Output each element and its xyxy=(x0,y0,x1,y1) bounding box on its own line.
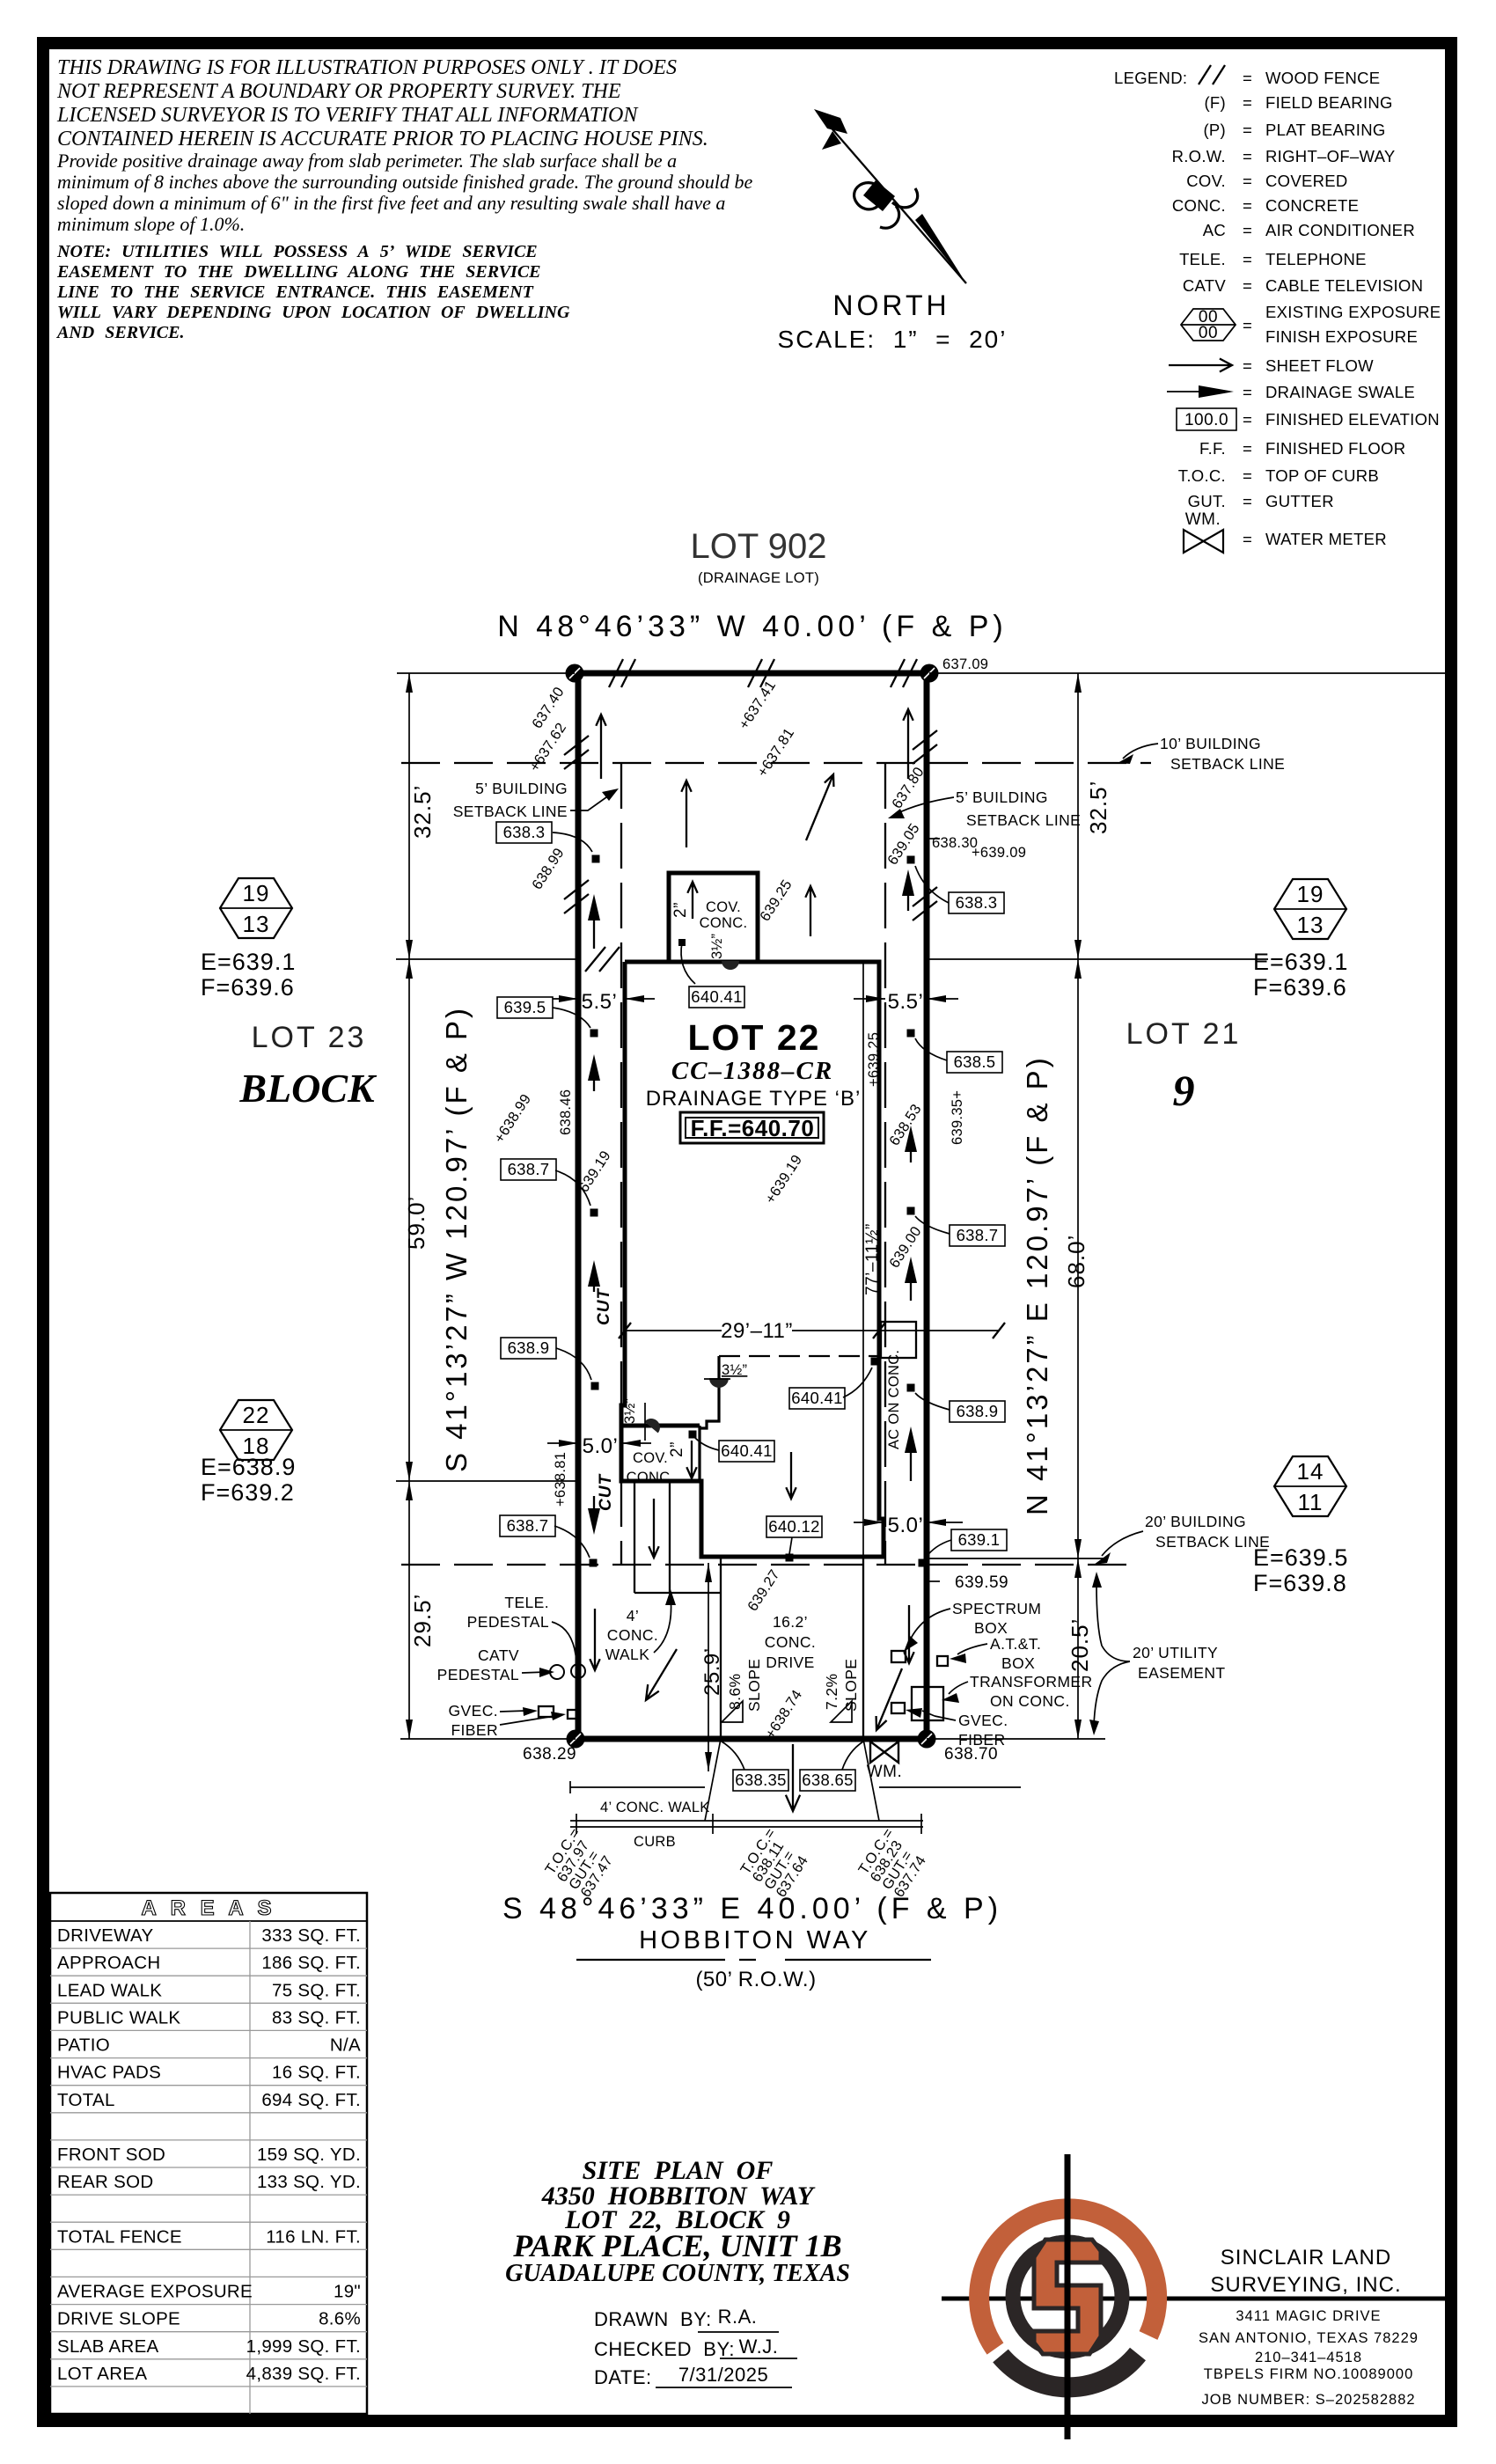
svg-text:TELEPHONE: TELEPHONE xyxy=(1265,250,1367,268)
svg-text:=: = xyxy=(1243,439,1252,458)
svg-text:LEGEND:: LEGEND: xyxy=(1114,69,1187,87)
svg-text:=: = xyxy=(1243,93,1252,112)
svg-text:COV.: COV. xyxy=(706,899,741,915)
svg-text:minimum slope of 1.0%.: minimum slope of 1.0%. xyxy=(57,213,245,235)
svg-text:8.6%: 8.6% xyxy=(726,1674,744,1711)
svg-text:=: = xyxy=(1243,276,1252,295)
svg-text:638.29: 638.29 xyxy=(523,1745,576,1764)
svg-text:SETBACK LINE: SETBACK LINE xyxy=(453,803,568,820)
svg-text:19: 19 xyxy=(1297,881,1324,907)
svg-text:EASEMENT TO THE DWELLING A: EASEMENT TO THE DWELLING ALONG THE SERVI… xyxy=(56,262,541,282)
svg-text:25.9’: 25.9’ xyxy=(700,1647,724,1696)
svg-text:9: 9 xyxy=(1173,1066,1195,1115)
svg-text:S 48°46’33” E 40.00’ (F & P): S 48°46’33” E 40.00’ (F & P) xyxy=(502,1892,1002,1925)
svg-text:EXISTING EXPOSURE: EXISTING EXPOSURE xyxy=(1265,303,1441,321)
svg-text:A.T.&T.: A.T.&T. xyxy=(990,1635,1041,1653)
svg-text:SINCLAIR LAND: SINCLAIR LAND xyxy=(1221,2246,1391,2270)
svg-text:E=639.1: E=639.1 xyxy=(1253,949,1348,975)
svg-text:S 41°13’27” W 120.97’ (F & P): S 41°13’27” W 120.97’ (F & P) xyxy=(440,1006,473,1472)
svg-text:FINISH EXPOSURE: FINISH EXPOSURE xyxy=(1265,327,1418,346)
svg-text:=: = xyxy=(1243,121,1252,139)
svg-text:3½”: 3½” xyxy=(709,934,725,959)
svg-text:DRAINAGE SWALE: DRAINAGE SWALE xyxy=(1265,383,1415,401)
svg-text:W.J.: W.J. xyxy=(739,2336,779,2358)
svg-text:HOBBITON WAY: HOBBITON WAY xyxy=(639,1926,871,1954)
svg-text:CONC.: CONC. xyxy=(607,1626,658,1644)
svg-text:CURB: CURB xyxy=(634,1834,676,1850)
svg-text:=: = xyxy=(1243,221,1252,239)
svg-text:68.0’: 68.0’ xyxy=(1063,1235,1089,1288)
svg-text:16.2’: 16.2’ xyxy=(773,1613,808,1631)
svg-text:5.0’: 5.0’ xyxy=(888,1514,924,1537)
svg-text:100.0: 100.0 xyxy=(1184,411,1228,429)
svg-text:638.5: 638.5 xyxy=(954,1052,996,1071)
svg-text:R.A.: R.A. xyxy=(718,2306,758,2328)
svg-text:638.7: 638.7 xyxy=(508,1160,550,1178)
svg-text:WILL VARY DEPENDING UPON L: WILL VARY DEPENDING UPON LOCATION OF DWE… xyxy=(57,303,570,322)
svg-text:ON CONC.: ON CONC. xyxy=(990,1692,1070,1710)
svg-text:AVERAGE EXPOSURE: AVERAGE EXPOSURE xyxy=(57,2282,253,2302)
svg-text:5.5’: 5.5’ xyxy=(888,990,924,1014)
svg-text:minimum of 8 inches above the: minimum of 8 inches above the surroundin… xyxy=(57,171,753,193)
svg-text:F=639.6: F=639.6 xyxy=(1253,974,1347,1001)
svg-text:AIR CONDITIONER: AIR CONDITIONER xyxy=(1265,221,1415,239)
svg-text:PLAT BEARING: PLAT BEARING xyxy=(1265,121,1386,139)
svg-text:32.5’: 32.5’ xyxy=(1085,781,1111,834)
svg-text:8.6%: 8.6% xyxy=(319,2309,361,2329)
svg-text:639.35+: 639.35+ xyxy=(950,1090,965,1145)
svg-text:159 SQ. YD.: 159 SQ. YD. xyxy=(257,2145,361,2165)
svg-text:3411 MAGIC DRIVE: 3411 MAGIC DRIVE xyxy=(1236,2308,1381,2324)
svg-text:FIELD BEARING: FIELD BEARING xyxy=(1265,93,1393,112)
svg-text:NOTE: UTILITIES WILL POSSES: NOTE: UTILITIES WILL POSSESS A 5’ WIDE S… xyxy=(56,242,538,261)
svg-text:E=638.9: E=638.9 xyxy=(201,1454,296,1480)
svg-text:AC ON CONC.: AC ON CONC. xyxy=(886,1350,902,1449)
svg-text:GUADALUPE COUNTY, TEXAS: GUADALUPE COUNTY, TEXAS xyxy=(505,2260,850,2287)
svg-text:SPECTRUM: SPECTRUM xyxy=(952,1600,1041,1617)
svg-text:=: = xyxy=(1243,492,1252,510)
svg-text:WALK: WALK xyxy=(605,1646,650,1663)
svg-text:SLAB AREA: SLAB AREA xyxy=(57,2336,159,2357)
svg-text:LOT AREA: LOT AREA xyxy=(57,2364,147,2384)
svg-text:GUTTER: GUTTER xyxy=(1265,492,1334,510)
svg-text:TRANSFORMER: TRANSFORMER xyxy=(970,1673,1093,1690)
svg-text:694 SQ. FT.: 694 SQ. FT. xyxy=(261,2090,361,2110)
svg-text:DRIVE SLOPE: DRIVE SLOPE xyxy=(57,2309,180,2329)
svg-text:T.O.C.: T.O.C. xyxy=(1178,466,1226,485)
svg-text:LOT 23: LOT 23 xyxy=(252,1021,367,1054)
svg-text:TOTAL: TOTAL xyxy=(57,2090,115,2110)
svg-text:=: = xyxy=(1243,196,1252,215)
svg-text:GVEC.: GVEC. xyxy=(958,1712,1008,1729)
svg-text:=: = xyxy=(1243,172,1252,190)
svg-text:11: 11 xyxy=(1298,1489,1324,1515)
svg-text:210–341–4518: 210–341–4518 xyxy=(1255,2350,1362,2365)
svg-text:LOT 21: LOT 21 xyxy=(1126,1017,1242,1051)
svg-text:TELE.: TELE. xyxy=(1179,250,1226,268)
svg-text:(50’ R.O.W.): (50’ R.O.W.) xyxy=(695,1968,816,1991)
svg-text:=: = xyxy=(1243,530,1252,548)
svg-text:29’–11”: 29’–11” xyxy=(721,1319,793,1343)
svg-text:NOT REPRESENT A BOUNDARY OR PR: NOT REPRESENT A BOUNDARY OR PROPERTY SUR… xyxy=(56,80,621,103)
svg-text:GVEC.: GVEC. xyxy=(449,1702,498,1720)
svg-text:(DRAINAGE LOT): (DRAINAGE LOT) xyxy=(698,570,819,586)
svg-text:PARK PLACE, UNIT 1B: PARK PLACE, UNIT 1B xyxy=(512,2228,841,2263)
svg-text:133 SQ. YD.: 133 SQ. YD. xyxy=(257,2172,361,2192)
svg-text:=: = xyxy=(1243,410,1252,429)
svg-text:186 SQ. FT.: 186 SQ. FT. xyxy=(261,1953,361,1973)
svg-text:F.F.=640.70: F.F.=640.70 xyxy=(691,1115,815,1141)
svg-text:SETBACK LINE: SETBACK LINE xyxy=(1170,755,1285,773)
svg-text:77’–11½”: 77’–11½” xyxy=(863,1223,882,1295)
svg-text:7/31/2025: 7/31/2025 xyxy=(678,2364,768,2386)
svg-text:DRAWN BY:: DRAWN BY: xyxy=(594,2308,712,2330)
svg-text:E=639.5: E=639.5 xyxy=(1253,1544,1348,1571)
svg-text:333 SQ. FT.: 333 SQ. FT. xyxy=(261,1925,361,1946)
svg-text:GUT.: GUT. xyxy=(1188,492,1226,510)
svg-text:BOX: BOX xyxy=(1001,1654,1035,1672)
svg-text:CUT: CUT xyxy=(595,1288,613,1325)
svg-text:7.2%: 7.2% xyxy=(823,1674,840,1711)
svg-text:10’ BUILDING: 10’ BUILDING xyxy=(1160,735,1261,752)
svg-text:640.41: 640.41 xyxy=(691,987,742,1006)
svg-text:BLOCK: BLOCK xyxy=(238,1066,378,1111)
svg-text:5.5’: 5.5’ xyxy=(582,990,618,1014)
svg-text:APPROACH: APPROACH xyxy=(57,1953,160,1973)
svg-text:DRIVEWAY: DRIVEWAY xyxy=(57,1925,153,1946)
svg-text:THIS DRAWING IS FOR ILLUSTRATI: THIS DRAWING IS FOR ILLUSTRATION PURPOSE… xyxy=(57,56,677,79)
svg-text:TBPELS FIRM NO.10089000: TBPELS FIRM NO.10089000 xyxy=(1204,2366,1414,2382)
svg-text:(F): (F) xyxy=(1204,93,1226,112)
svg-text:5’ BUILDING: 5’ BUILDING xyxy=(475,780,568,797)
svg-text:CATV: CATV xyxy=(1183,276,1227,295)
svg-text:WM.: WM. xyxy=(867,1763,903,1781)
svg-text:=: = xyxy=(1243,69,1252,87)
svg-text:CONTAINED HEREIN IS ACCURATE P: CONTAINED HEREIN IS ACCURATE PRIOR TO PL… xyxy=(57,128,708,150)
svg-text:TOP OF CURB: TOP OF CURB xyxy=(1265,466,1379,485)
svg-text:PEDESTAL: PEDESTAL xyxy=(467,1613,549,1631)
svg-text:E=639.1: E=639.1 xyxy=(201,949,296,975)
svg-text:116 LN. FT.: 116 LN. FT. xyxy=(266,2226,361,2247)
svg-text:DATE:: DATE: xyxy=(594,2366,652,2388)
svg-text:20’ BUILDING: 20’ BUILDING xyxy=(1145,1513,1246,1530)
svg-text:SCALE: 1” = 20’: SCALE: 1” = 20’ xyxy=(778,326,1008,353)
svg-text:59.0’: 59.0’ xyxy=(403,1196,429,1250)
svg-text:75 SQ. FT.: 75 SQ. FT. xyxy=(272,1980,361,2000)
svg-text:+639.25: +639.25 xyxy=(866,1032,882,1087)
svg-text:+638.81: +638.81 xyxy=(553,1452,568,1507)
svg-text:HVAC PADS: HVAC PADS xyxy=(57,2063,161,2083)
svg-text:LOT 902: LOT 902 xyxy=(691,527,827,566)
svg-text:sloped down a minimum of 6" in: sloped down a minimum of 6" in the first… xyxy=(57,192,725,214)
svg-text:Provide positive drainage away: Provide positive drainage away from slab… xyxy=(56,150,677,172)
svg-text:14: 14 xyxy=(1297,1458,1324,1485)
svg-text:639.5: 639.5 xyxy=(504,998,546,1016)
svg-text:AC: AC xyxy=(1203,221,1226,239)
svg-text:5’ BUILDING: 5’ BUILDING xyxy=(956,788,1048,806)
svg-text:637.09: 637.09 xyxy=(942,656,988,672)
svg-text:SURVEYING, INC.: SURVEYING, INC. xyxy=(1210,2273,1401,2297)
svg-text:AND SERVICE.: AND SERVICE. xyxy=(55,323,184,342)
svg-text:=: = xyxy=(1243,250,1252,268)
svg-text:CHECKED BY:: CHECKED BY: xyxy=(594,2338,735,2360)
svg-text:=: = xyxy=(1243,147,1252,165)
svg-text:16 SQ. FT.: 16 SQ. FT. xyxy=(272,2063,361,2083)
svg-text:640.41: 640.41 xyxy=(791,1389,842,1407)
svg-text:BOX: BOX xyxy=(974,1619,1008,1637)
svg-text:2”: 2” xyxy=(671,902,690,918)
svg-text:13: 13 xyxy=(1297,912,1324,938)
svg-text:4’: 4’ xyxy=(627,1607,639,1624)
svg-text:LINE TO THE SERVICE ENTRAN: LINE TO THE SERVICE ENTRANCE. THIS EASEM… xyxy=(56,282,534,302)
svg-text:640.12: 640.12 xyxy=(768,1517,819,1536)
svg-text:WOOD FENCE: WOOD FENCE xyxy=(1265,69,1380,87)
svg-text:32.5’: 32.5’ xyxy=(409,785,436,839)
svg-text:20.5’: 20.5’ xyxy=(1067,1618,1093,1672)
svg-text:SLOPE: SLOPE xyxy=(842,1659,860,1712)
svg-text:29.5’: 29.5’ xyxy=(409,1594,436,1647)
svg-text:=: = xyxy=(1243,383,1252,401)
svg-text:COVERED: COVERED xyxy=(1265,172,1348,190)
svg-text:COV.: COV. xyxy=(1186,172,1226,190)
svg-text:83 SQ. FT.: 83 SQ. FT. xyxy=(272,2007,361,2028)
svg-text:=: = xyxy=(1243,316,1252,334)
svg-text:R.O.W.: R.O.W. xyxy=(1172,147,1226,165)
svg-text:LICENSED SURVEYOR IS TO VERIFY: LICENSED SURVEYOR IS TO VERIFY THAT ALL … xyxy=(56,104,639,127)
svg-text:3½”: 3½” xyxy=(722,1362,747,1378)
svg-text:638.65: 638.65 xyxy=(802,1771,853,1789)
svg-text:DRIVE: DRIVE xyxy=(766,1654,814,1671)
svg-text:FRONT SOD: FRONT SOD xyxy=(57,2145,165,2165)
svg-text:DRAINAGE TYPE ‘B’: DRAINAGE TYPE ‘B’ xyxy=(646,1087,862,1111)
svg-text:N/A: N/A xyxy=(330,2035,361,2056)
svg-text:639.1: 639.1 xyxy=(958,1530,1001,1549)
svg-text:638.46: 638.46 xyxy=(558,1089,574,1135)
svg-text:N 48°46’33” W 40.00’ (F & P): N 48°46’33” W 40.00’ (F & P) xyxy=(497,610,1007,643)
svg-text:+639.09: +639.09 xyxy=(972,845,1026,861)
svg-text:5.0’: 5.0’ xyxy=(583,1434,619,1458)
svg-text:638.3: 638.3 xyxy=(503,823,546,841)
svg-text:LEAD WALK: LEAD WALK xyxy=(57,1980,162,2000)
svg-text:A R E A S: A R E A S xyxy=(141,1896,275,1920)
svg-text:CONC.: CONC. xyxy=(765,1633,816,1651)
svg-text:N 41°13’27” E 120.97’ (F & P): N 41°13’27” E 120.97’ (F & P) xyxy=(1021,1055,1053,1515)
svg-text:(P): (P) xyxy=(1203,121,1226,139)
svg-text:REAR SOD: REAR SOD xyxy=(57,2172,153,2192)
svg-text:2”: 2” xyxy=(668,1441,686,1457)
svg-text:WM.: WM. xyxy=(1185,510,1221,529)
svg-text:F.F.: F.F. xyxy=(1199,439,1226,458)
svg-text:638.35: 638.35 xyxy=(735,1771,786,1789)
svg-text:4,839 SQ. FT.: 4,839 SQ. FT. xyxy=(246,2364,361,2384)
svg-text:EASEMENT: EASEMENT xyxy=(1138,1664,1225,1682)
svg-text:TOTAL FENCE: TOTAL FENCE xyxy=(57,2226,182,2247)
svg-text:SHEET FLOW: SHEET FLOW xyxy=(1265,356,1374,375)
svg-text:638.7: 638.7 xyxy=(507,1516,549,1535)
svg-text:13: 13 xyxy=(243,911,270,937)
svg-text:FIBER: FIBER xyxy=(451,1721,498,1739)
svg-text:RIGHT–OF–WAY: RIGHT–OF–WAY xyxy=(1265,147,1396,165)
svg-text:=: = xyxy=(1243,356,1252,375)
svg-text:639.59: 639.59 xyxy=(955,1573,1008,1592)
svg-text:3½”: 3½” xyxy=(622,1398,638,1424)
svg-text:CABLE TELEVISION: CABLE TELEVISION xyxy=(1265,276,1423,295)
svg-text:638.9: 638.9 xyxy=(957,1402,999,1420)
svg-text:NORTH: NORTH xyxy=(832,290,950,321)
svg-text:20’ UTILITY: 20’ UTILITY xyxy=(1133,1644,1218,1661)
svg-text:19": 19" xyxy=(334,2282,361,2302)
svg-text:FIBER: FIBER xyxy=(958,1731,1006,1749)
svg-text:CC–1388–CR: CC–1388–CR xyxy=(671,1057,833,1085)
svg-text:19: 19 xyxy=(243,880,270,906)
svg-text:FINISHED ELEVATION: FINISHED ELEVATION xyxy=(1265,410,1440,429)
svg-text:640.41: 640.41 xyxy=(721,1441,772,1460)
svg-text:SAN ANTONIO, TEXAS 78229: SAN ANTONIO, TEXAS 78229 xyxy=(1199,2330,1419,2346)
svg-text:638.3: 638.3 xyxy=(956,893,998,912)
svg-text:SLOPE: SLOPE xyxy=(745,1659,763,1712)
svg-text:PUBLIC WALK: PUBLIC WALK xyxy=(57,2007,180,2028)
svg-text:CONC.: CONC. xyxy=(1172,196,1226,215)
svg-text:WATER METER: WATER METER xyxy=(1265,530,1387,548)
svg-text:=: = xyxy=(1243,466,1252,485)
svg-text:SETBACK LINE: SETBACK LINE xyxy=(966,811,1081,829)
svg-text:COV.: COV. xyxy=(633,1450,668,1466)
svg-text:22: 22 xyxy=(243,1402,270,1428)
svg-text:F=639.8: F=639.8 xyxy=(1253,1570,1347,1596)
svg-text:CONCRETE: CONCRETE xyxy=(1265,196,1359,215)
svg-text:CONC.: CONC. xyxy=(700,915,748,931)
svg-text:LOT 22: LOT 22 xyxy=(688,1017,821,1058)
svg-text:CUT: CUT xyxy=(597,1474,615,1511)
svg-text:00: 00 xyxy=(1199,324,1218,342)
svg-text:638.7: 638.7 xyxy=(957,1226,999,1244)
svg-text:FINISHED FLOOR: FINISHED FLOOR xyxy=(1265,439,1405,458)
svg-text:F=639.2: F=639.2 xyxy=(201,1479,295,1506)
svg-text:638.9: 638.9 xyxy=(508,1338,550,1357)
svg-text:JOB NUMBER: S–202582882: JOB NUMBER: S–202582882 xyxy=(1201,2392,1415,2408)
svg-text:TELE.: TELE. xyxy=(504,1594,549,1611)
svg-text:4’ CONC. WALK: 4’ CONC. WALK xyxy=(600,1800,710,1815)
svg-text:F=639.6: F=639.6 xyxy=(201,974,295,1001)
svg-text:PEDESTAL: PEDESTAL xyxy=(437,1666,519,1683)
svg-text:1,999 SQ. FT.: 1,999 SQ. FT. xyxy=(246,2336,361,2357)
svg-text:PATIO: PATIO xyxy=(57,2035,110,2056)
svg-text:CATV: CATV xyxy=(478,1646,519,1664)
